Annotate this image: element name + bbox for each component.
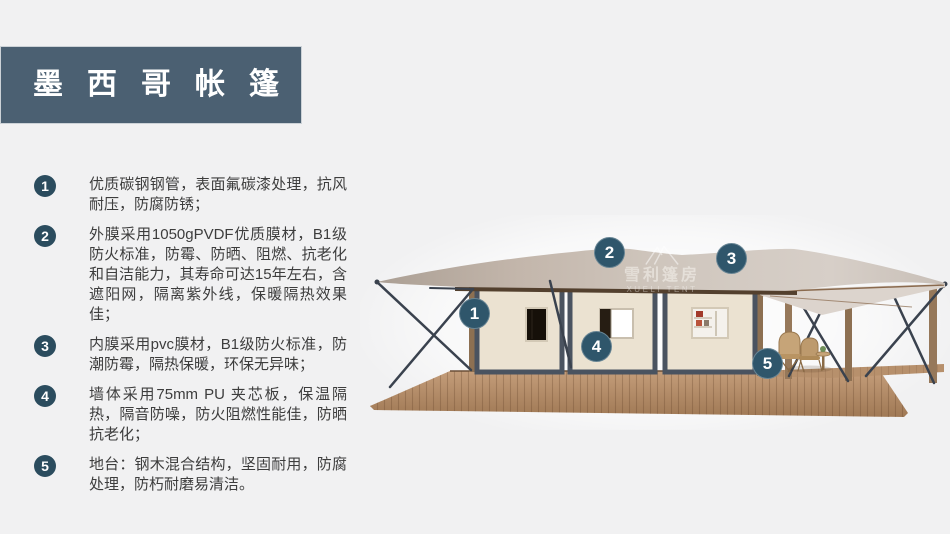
list-item: 5 地台：钢木混合结构，坚固耐用，防腐处理，防朽耐磨易清洁。 <box>34 455 364 495</box>
feature-text: 墙体采用75mm PU 夹芯板，保温隔热，隔音防噪，防火阻燃性能佳，防晒抗老化； <box>89 385 347 445</box>
number-badge: 1 <box>34 175 56 197</box>
tent-illustration <box>360 215 950 430</box>
window-dark <box>526 308 547 341</box>
number-badge: 2 <box>34 225 56 247</box>
list-item: 4 墙体采用75mm PU 夹芯板，保温隔热，隔音防噪，防火阻燃性能佳，防晒抗老… <box>34 385 364 445</box>
list-item: 1 优质碳钢钢管，表面氟碳漆处理，抗风耐压，防腐防锈； <box>34 175 364 215</box>
callout-1: 1 <box>459 298 490 329</box>
number-badge: 4 <box>34 385 56 407</box>
callout-5: 5 <box>752 348 783 379</box>
list-item: 2 外膜采用1050gPVDF优质膜材，B1级防火标准，防霉、防晒、阻燃、抗老化… <box>34 225 364 325</box>
slide: 墨西哥帐篷 1 优质碳钢钢管，表面氟碳漆处理，抗风耐压，防腐防锈； 2 外膜采用… <box>0 0 950 534</box>
callout-2: 2 <box>594 237 625 268</box>
callout-4: 4 <box>581 331 612 362</box>
feature-text: 地台：钢木混合结构，坚固耐用，防腐处理，防朽耐磨易清洁。 <box>89 455 347 495</box>
wall-module-1 <box>477 287 562 372</box>
feature-text: 优质碳钢钢管，表面氟碳漆处理，抗风耐压，防腐防锈； <box>89 175 347 215</box>
feature-list: 1 优质碳钢钢管，表面氟碳漆处理，抗风耐压，防腐防锈； 2 外膜采用1050gP… <box>34 175 364 495</box>
feature-text: 内膜采用pvc膜材，B1级防火标准，防潮防霉，隔热保暖，环保无异味； <box>89 335 347 375</box>
callout-3: 3 <box>716 243 747 274</box>
plant <box>820 346 826 352</box>
feature-text: 外膜采用1050gPVDF优质膜材，B1级防火标准，防霉、防晒、阻燃、抗老化和自… <box>89 225 347 325</box>
number-badge: 5 <box>34 455 56 477</box>
title-box: 墨西哥帐篷 <box>0 46 302 124</box>
page-title: 墨西哥帐篷 <box>33 70 303 100</box>
list-item: 3 内膜采用pvc膜材，B1级防火标准，防潮防霉，隔热保暖，环保无异味； <box>34 335 364 375</box>
window-shelf <box>692 308 728 338</box>
number-badge: 3 <box>34 335 56 357</box>
